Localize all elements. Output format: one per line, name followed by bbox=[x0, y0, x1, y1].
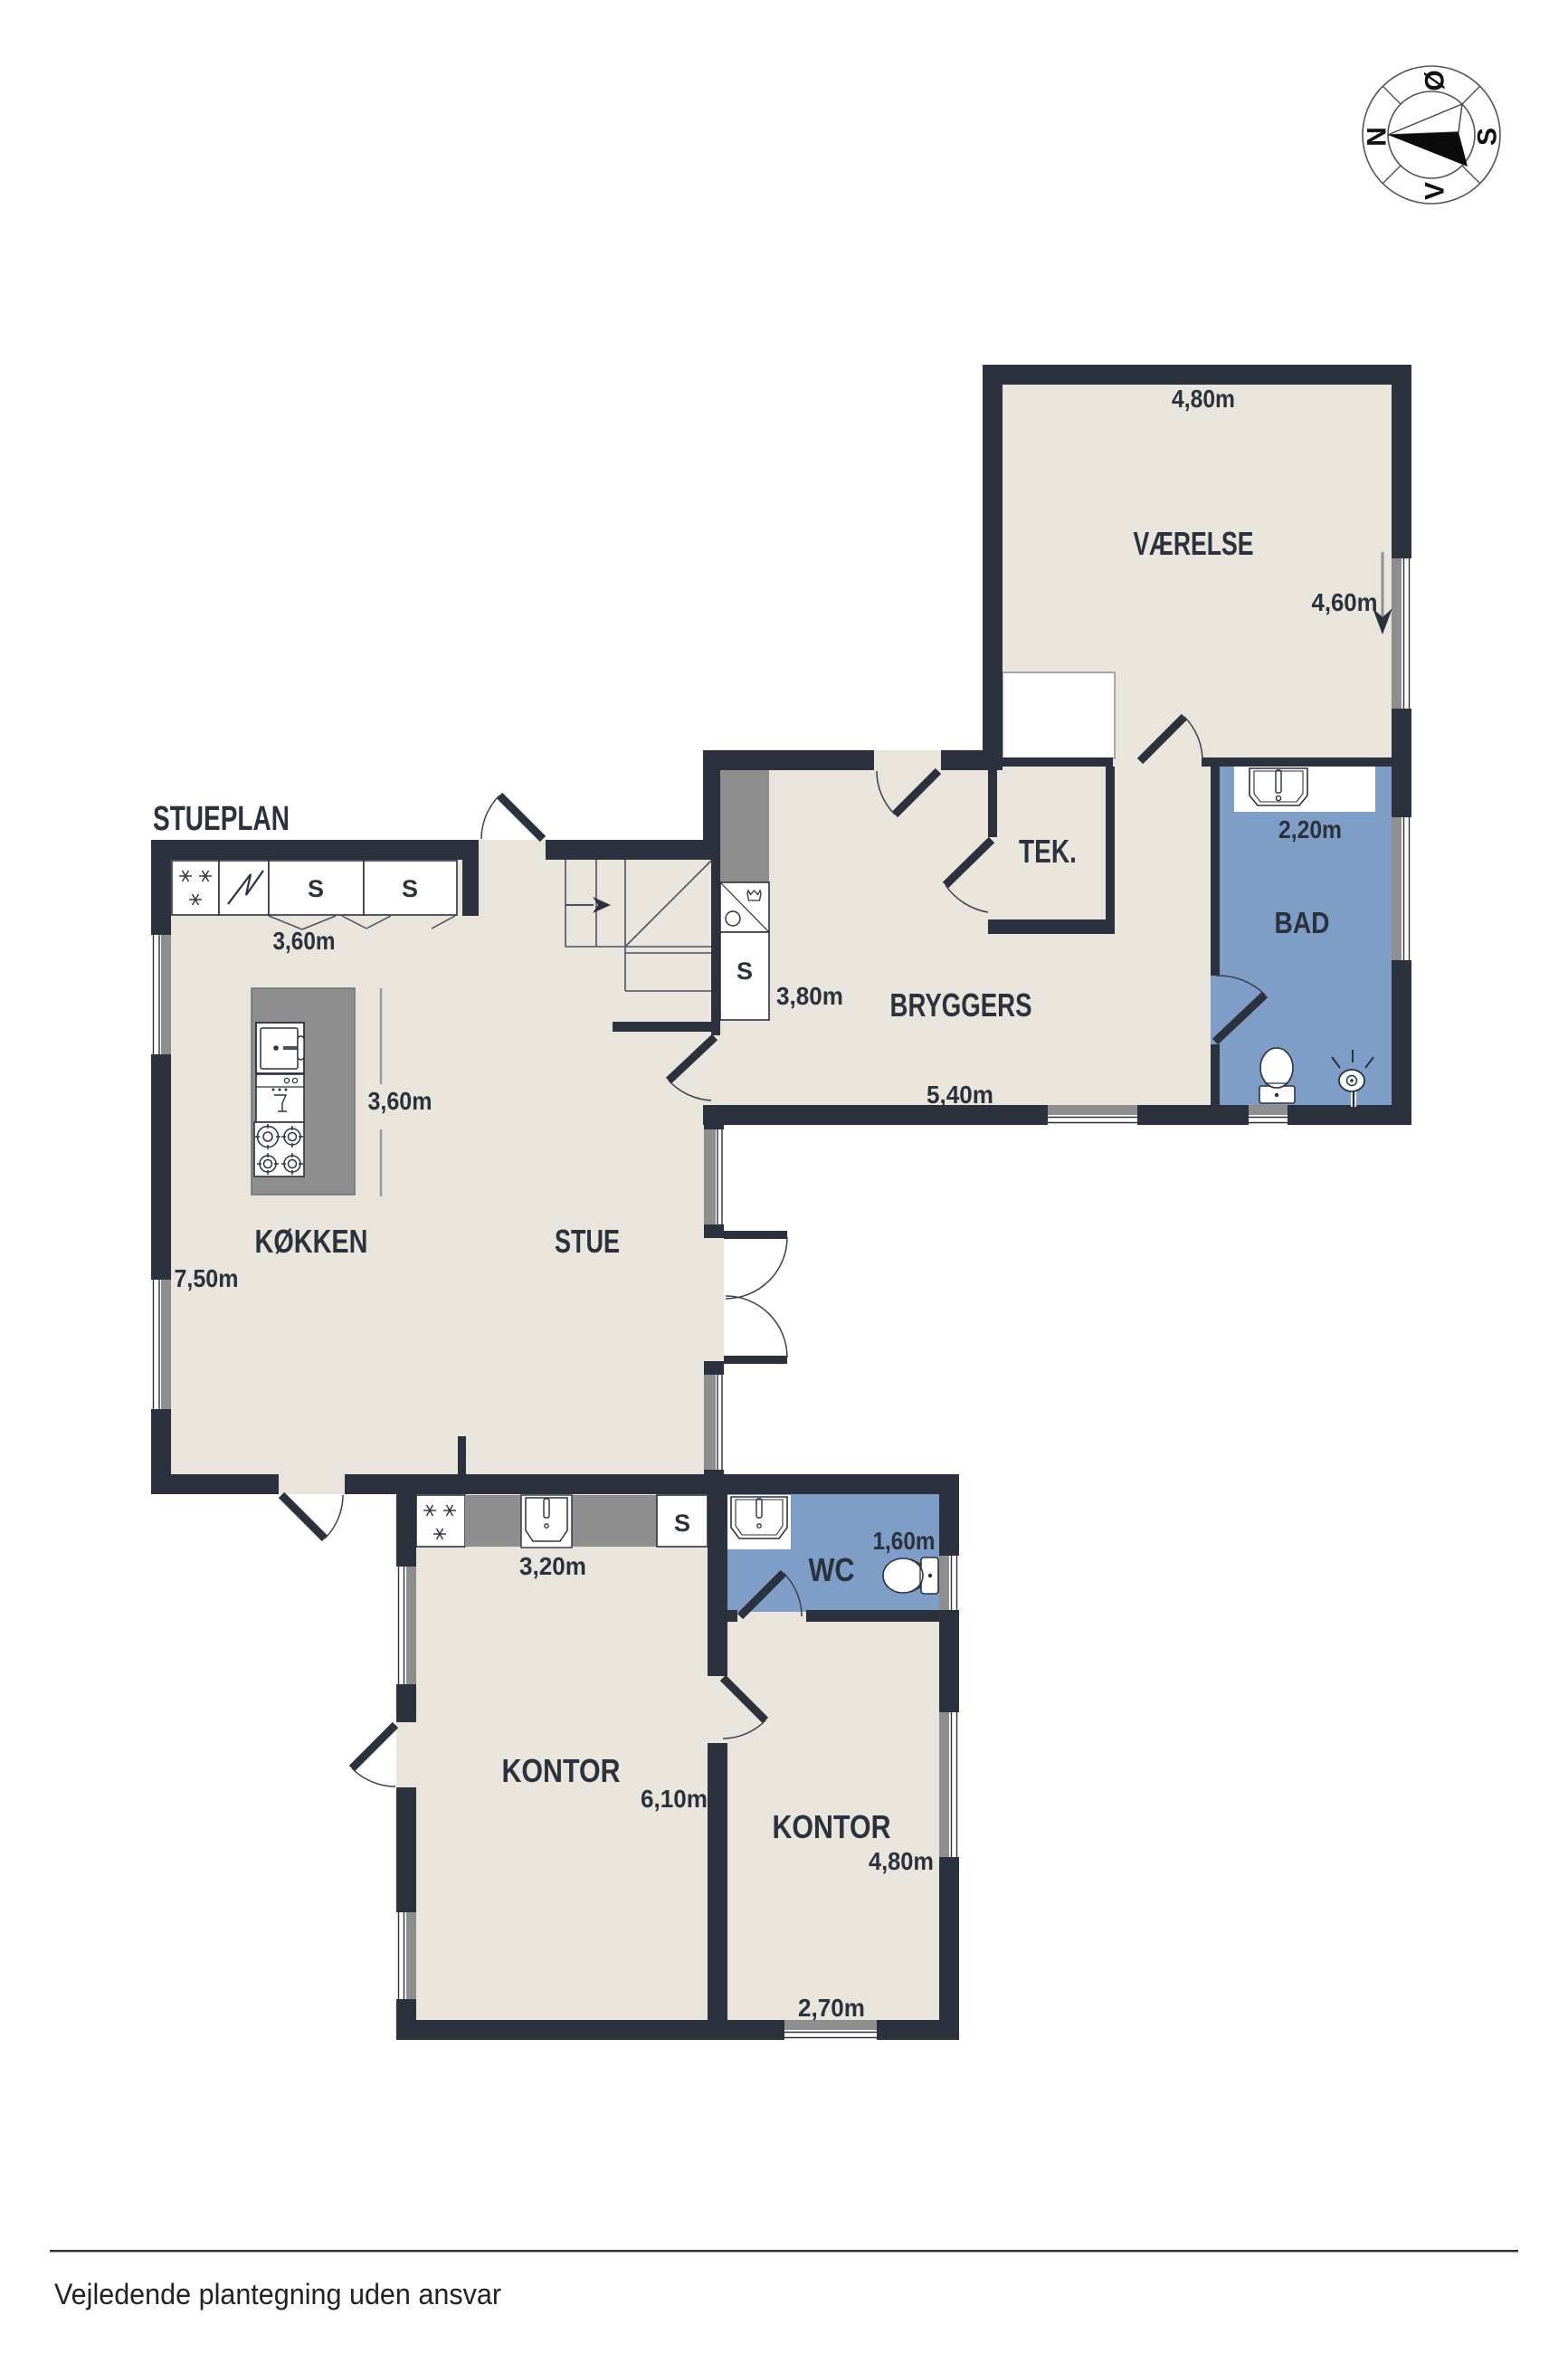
svg-text:4,80m: 4,80m bbox=[1172, 385, 1235, 413]
svg-text:3,60m: 3,60m bbox=[273, 927, 336, 955]
svg-text:3,20m: 3,20m bbox=[519, 1552, 586, 1580]
svg-text:S: S bbox=[736, 957, 753, 985]
svg-text:VÆRELSE: VÆRELSE bbox=[1134, 525, 1254, 562]
svg-text:WC: WC bbox=[809, 1551, 855, 1588]
svg-text:STUEPLAN: STUEPLAN bbox=[153, 800, 290, 838]
svg-text:S: S bbox=[674, 1510, 690, 1537]
svg-text:S: S bbox=[1473, 128, 1503, 146]
svg-text:Ø: Ø bbox=[1421, 70, 1450, 90]
svg-text:Vejledende plantegning uden an: Vejledende plantegning uden ansvar bbox=[54, 2278, 501, 2310]
svg-text:4,60m: 4,60m bbox=[1312, 588, 1378, 616]
svg-text:BRYGGERS: BRYGGERS bbox=[890, 986, 1032, 1024]
svg-text:TEK.: TEK. bbox=[1019, 833, 1077, 870]
svg-text:2,70m: 2,70m bbox=[798, 1994, 865, 2022]
svg-text:KONTOR: KONTOR bbox=[773, 1808, 891, 1845]
svg-text:1,60m: 1,60m bbox=[873, 1527, 936, 1555]
svg-text:KØKKEN: KØKKEN bbox=[255, 1223, 368, 1260]
svg-text:S: S bbox=[308, 875, 324, 902]
svg-text:3,60m: 3,60m bbox=[368, 1087, 432, 1115]
svg-text:V: V bbox=[1421, 182, 1450, 200]
svg-text:BAD: BAD bbox=[1275, 906, 1330, 939]
svg-text:4,80m: 4,80m bbox=[869, 1847, 934, 1875]
svg-text:3,80m: 3,80m bbox=[776, 982, 843, 1010]
svg-text:KONTOR: KONTOR bbox=[502, 1752, 621, 1789]
svg-text:5,40m: 5,40m bbox=[927, 1081, 993, 1109]
svg-text:S: S bbox=[402, 875, 418, 902]
svg-text:N: N bbox=[1363, 127, 1392, 147]
svg-text:2,20m: 2,20m bbox=[1278, 815, 1342, 843]
svg-text:STUE: STUE bbox=[555, 1223, 620, 1260]
svg-text:7,50m: 7,50m bbox=[175, 1264, 239, 1292]
svg-text:6,10m: 6,10m bbox=[641, 1785, 708, 1813]
